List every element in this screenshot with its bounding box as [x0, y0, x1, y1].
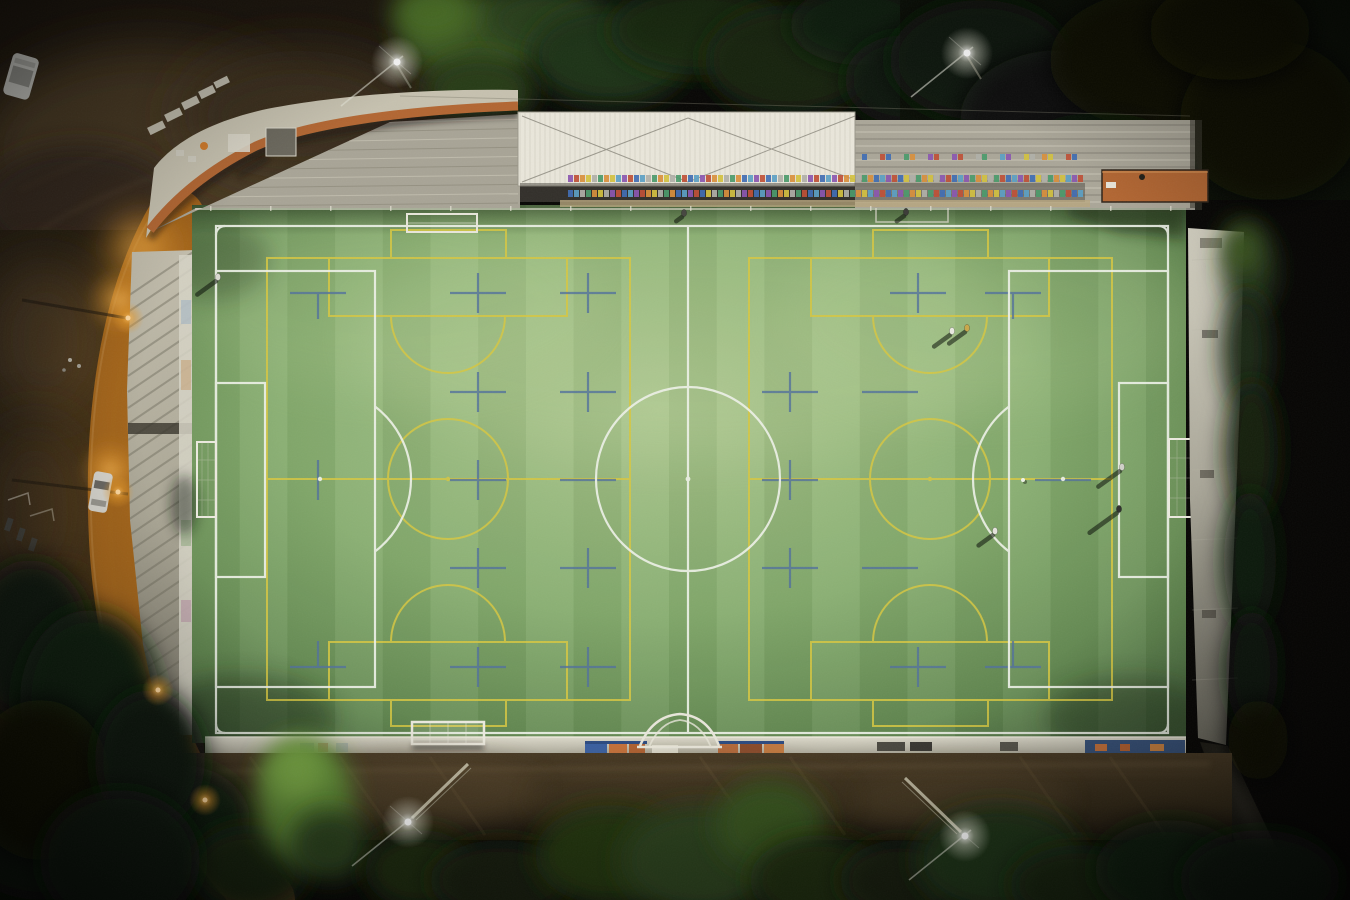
scene-svg: [0, 0, 1350, 900]
aerial-night-football-pitch-photo: [0, 0, 1350, 900]
vignette: [0, 0, 1350, 900]
